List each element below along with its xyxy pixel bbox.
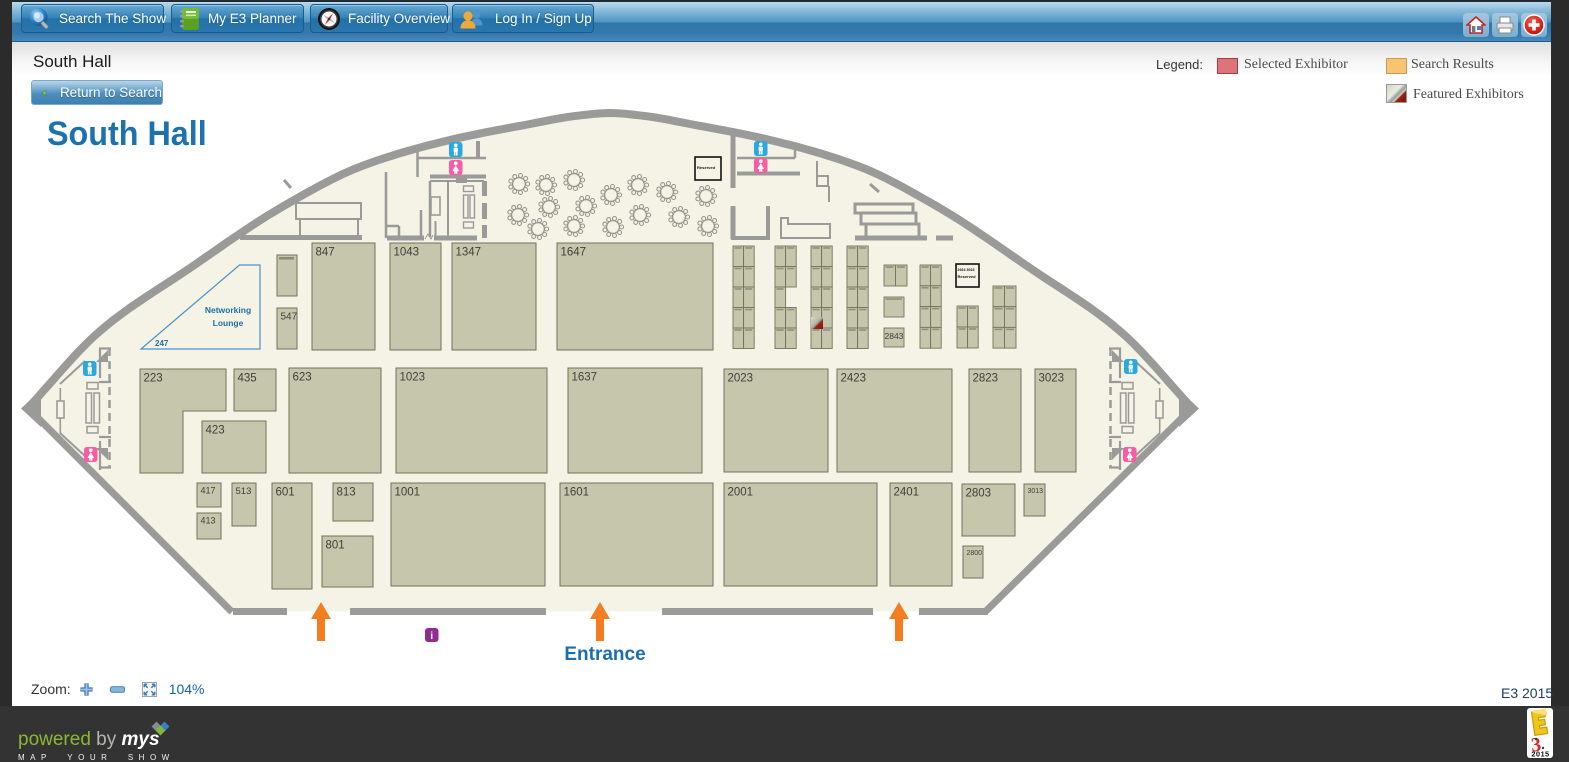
svg-text:Reserved: Reserved: [958, 274, 977, 279]
svg-text:601: 601: [276, 486, 295, 498]
svg-text:623: 623: [293, 371, 312, 383]
svg-text:1043: 1043: [394, 246, 420, 258]
svg-text:3023: 3023: [1039, 372, 1065, 384]
svg-text:2800: 2800: [967, 550, 983, 557]
svg-text:1347: 1347: [456, 246, 482, 258]
svg-text:1023: 1023: [400, 371, 426, 383]
svg-text:247: 247: [155, 339, 169, 348]
svg-text:2423: 2423: [841, 372, 867, 384]
svg-text:2001: 2001: [728, 486, 754, 498]
svg-text:2023: 2023: [728, 372, 754, 384]
svg-text:1601: 1601: [564, 486, 590, 498]
svg-text:Networking: Networking: [205, 305, 251, 315]
svg-text:2843: 2843: [885, 331, 904, 341]
svg-text:2401: 2401: [894, 486, 920, 498]
svg-text:413: 413: [201, 516, 216, 526]
svg-text:2015: 2015: [1531, 750, 1549, 759]
svg-text:847: 847: [316, 246, 335, 258]
svg-text:1001: 1001: [395, 486, 421, 498]
svg-text:1637: 1637: [572, 371, 598, 383]
svg-text:423: 423: [206, 424, 225, 436]
svg-text:2924 3023: 2924 3023: [958, 268, 975, 272]
svg-text:Entrance: Entrance: [564, 644, 645, 665]
svg-text:2823: 2823: [973, 372, 999, 384]
svg-text:513: 513: [236, 486, 252, 497]
svg-text:435: 435: [238, 372, 257, 384]
svg-text:223: 223: [144, 373, 163, 385]
svg-text:801: 801: [326, 539, 345, 551]
svg-text:813: 813: [337, 486, 356, 498]
svg-text:Lounge: Lounge: [213, 318, 244, 328]
svg-text:Reserved: Reserved: [697, 165, 716, 170]
svg-text:547: 547: [281, 311, 298, 322]
svg-text:1647: 1647: [561, 246, 587, 258]
svg-text:3013: 3013: [1028, 488, 1044, 495]
svg-text:i: i: [430, 630, 433, 642]
svg-text:417: 417: [201, 486, 216, 496]
svg-text:2803: 2803: [966, 487, 992, 499]
